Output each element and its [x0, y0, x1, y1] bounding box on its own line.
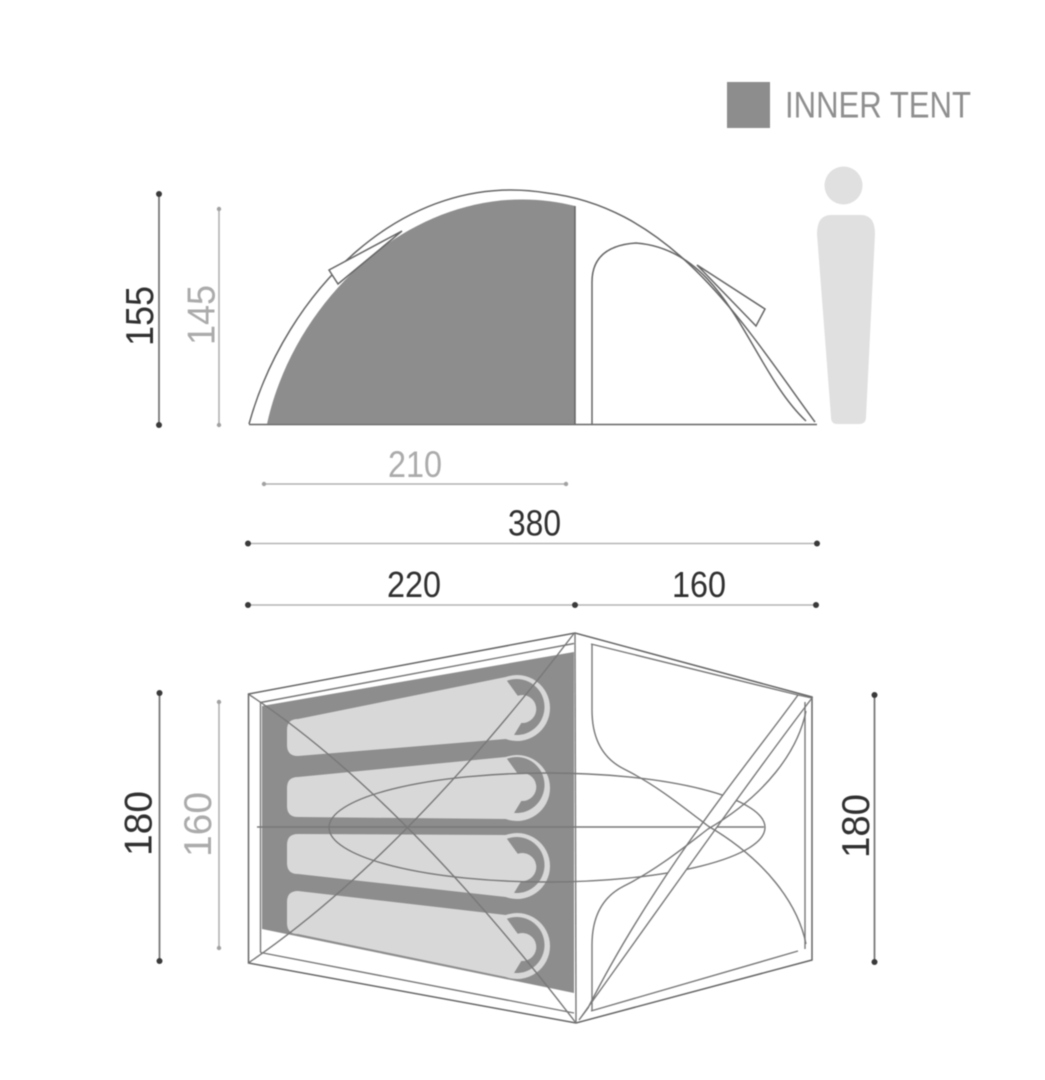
svg-text:180: 180	[118, 791, 161, 856]
svg-text:145: 145	[181, 285, 224, 345]
svg-text:220: 220	[387, 564, 441, 605]
svg-text:160: 160	[672, 564, 726, 605]
svg-text:INNER TENT: INNER TENT	[785, 84, 971, 125]
svg-text:160: 160	[177, 792, 220, 857]
svg-text:155: 155	[119, 286, 162, 346]
svg-text:180: 180	[835, 794, 878, 858]
svg-text:380: 380	[508, 503, 561, 544]
svg-text:210: 210	[388, 444, 442, 485]
